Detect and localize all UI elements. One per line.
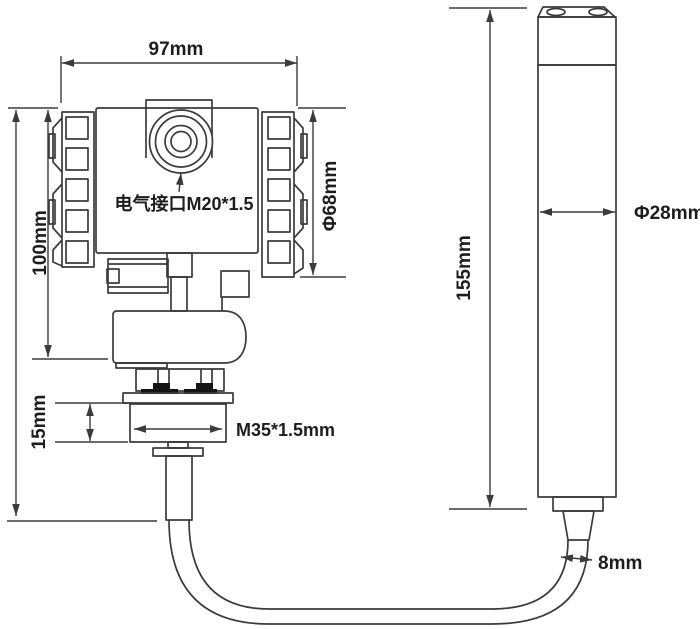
thread-nut [130, 404, 226, 442]
label-head-diameter: Φ68mm [320, 161, 341, 232]
label-cable-diameter: 8mm [598, 553, 642, 574]
cable [169, 520, 588, 624]
oval-lip [116, 363, 167, 368]
label-thread-height: 15mm [29, 395, 50, 450]
probe-cap [538, 17, 616, 65]
transmitter-head [49, 100, 307, 520]
dimension-labels: 97mm 100mm Φ68mm 电气接口M20*1.5 15mm M35*1.… [29, 39, 700, 574]
electrical-port-callout-arrow [179, 173, 181, 192]
sensor-oval-body [113, 311, 246, 363]
electrical-port-rings [150, 110, 213, 173]
flange-plate [123, 393, 233, 403]
mounting-bracket [107, 253, 249, 311]
dim-overall-height [7, 110, 157, 521]
probe [538, 7, 616, 540]
label-head-height: 100mm [30, 210, 51, 276]
probe-body [538, 65, 616, 497]
probe-vent-hole [547, 9, 565, 16]
probe-step [553, 497, 603, 511]
right-cap-ribs [268, 117, 290, 263]
left-cap [49, 112, 94, 267]
right-cap [262, 112, 307, 277]
probe-cable-gland [563, 511, 594, 540]
clamp-assembly [136, 369, 224, 394]
dim-thread-height [55, 403, 128, 442]
dimension-drawing-canvas: 97mm 100mm Φ68mm 电气接口M20*1.5 15mm M35*1.… [0, 0, 700, 629]
transmitter-dimension-drawing: 97mm 100mm Φ68mm 电气接口M20*1.5 15mm M35*1.… [0, 0, 700, 629]
label-probe-length: 155mm [454, 235, 475, 301]
process-connection [123, 393, 233, 520]
collar [153, 448, 203, 456]
label-probe-diameter: Φ28mm [634, 203, 700, 224]
dimension-lines [7, 8, 615, 560]
connection-tube [166, 456, 192, 520]
label-head-width: 97mm [149, 39, 204, 60]
label-electrical-port: 电气接口M20*1.5 [114, 193, 253, 214]
dim-head-width [61, 56, 297, 106]
left-cap-ribs [66, 117, 88, 263]
probe-vent-hole [589, 9, 607, 16]
label-thread-spec: M35*1.5mm [236, 420, 335, 440]
right-cap-lugs [294, 118, 307, 274]
